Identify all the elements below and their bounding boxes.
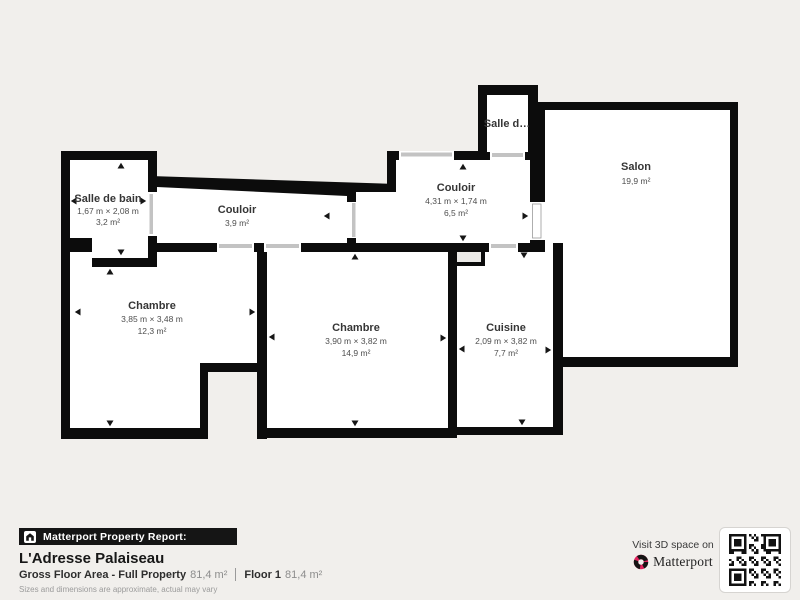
room-salon [545,110,730,357]
room-interiors [70,95,730,428]
area-cuisine: 7,7 m² [494,348,518,358]
label-cuisine: Cuisine [486,322,526,334]
qr-code [719,527,791,593]
matterport-logo: Matterport [628,554,718,570]
area-summary: Gross Floor Area - Full Property 81,4 m²… [19,568,322,581]
matterport-logo-icon [633,554,649,570]
area-chambre-2: 14,9 m² [342,348,371,358]
label-salon: Salon [621,161,651,173]
label-salle-de-bain: Salle de bain [74,193,142,205]
label-chambre-2: Chambre [332,322,380,334]
divider [235,568,236,581]
dims-salle-de-bain: 1,67 m × 2,08 m [77,206,139,216]
hall-passage [356,192,396,243]
dims-chambre-1: 3,85 m × 3,48 m [121,314,183,324]
exterior-notch [208,372,257,440]
label-salle-d: Salle d… [484,118,530,130]
label-chambre-1: Chambre [128,300,176,312]
wall-overlays [553,243,563,357]
duct-shaft [457,252,485,266]
visit-3d-block: Visit 3D space on Matterport [628,539,718,570]
qr-code-pattern [729,534,781,586]
area-salon: 19,9 m² [622,176,651,186]
dims-chambre-2: 3,90 m × 3,82 m [325,336,387,346]
floor-label: Floor 1 [244,569,281,581]
gross-floor-area-label: Gross Floor Area - Full Property [19,569,186,581]
disclaimer-text: Sizes and dimensions are approximate, ac… [19,585,217,594]
area-chambre-1: 12,3 m² [138,326,167,336]
label-couloir-2: Couloir [437,182,476,194]
label-couloir-1: Couloir [218,204,257,216]
floor-plan: Salle de bain 1,67 m × 2,08 m 3,2 m² Cou… [0,0,800,520]
dims-couloir-2: 4,31 m × 1,74 m [425,196,487,206]
property-name: L'Adresse Palaiseau [19,550,164,567]
area-couloir-2: 6,5 m² [444,208,468,218]
report-bar-label: Matterport Property Report: [43,531,187,543]
area-salle-de-bain: 3,2 m² [96,217,120,227]
floor-value: 81,4 m² [285,569,322,581]
area-couloir-1: 3,9 m² [225,218,249,228]
matterport-wordmark: Matterport [653,554,713,570]
matterport-house-icon [24,531,36,543]
report-bar: Matterport Property Report: [19,528,237,545]
visit-3d-text: Visit 3D space on [628,539,718,551]
dims-cuisine: 2,09 m × 3,82 m [475,336,537,346]
gross-floor-area-value: 81,4 m² [190,569,227,581]
